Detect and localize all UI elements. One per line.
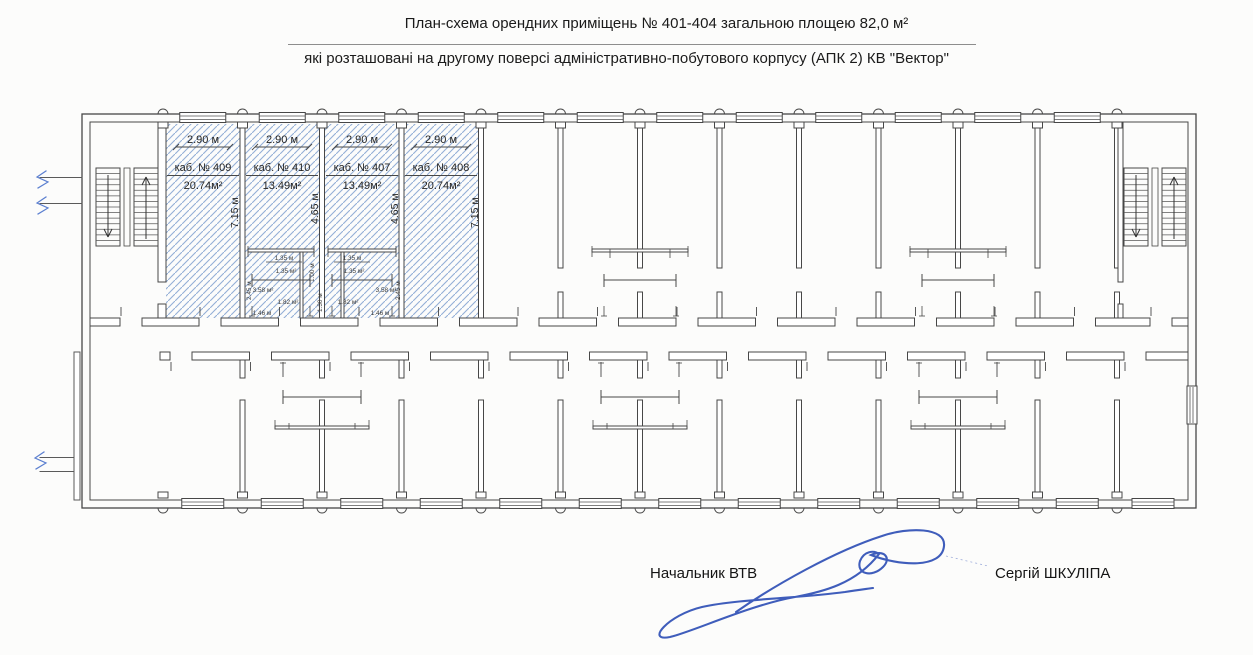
pier <box>556 122 566 128</box>
corridor-wall <box>669 352 727 360</box>
partition-pier <box>1035 292 1040 318</box>
inner-dim: 1.46 м <box>371 310 390 317</box>
pier <box>476 122 486 128</box>
room-407-depth-dim: 4.65 м <box>389 193 401 224</box>
stairs-rail <box>124 168 130 246</box>
partition-pier <box>638 292 643 318</box>
corridor-wall <box>749 352 807 360</box>
pier <box>874 122 884 128</box>
pier <box>953 122 963 128</box>
room-409-area: 20.74м² <box>184 180 223 192</box>
partition-pier <box>797 292 802 318</box>
stairwell-pier <box>158 304 166 318</box>
partition-wall <box>638 400 643 498</box>
pier <box>794 122 804 128</box>
partition-wall <box>956 122 961 268</box>
inner-dim: 2.45 м <box>246 281 253 300</box>
window <box>1132 499 1174 509</box>
column-bump <box>1112 508 1122 513</box>
partition-wall <box>876 122 881 268</box>
corridor-wall <box>1096 318 1151 326</box>
wall-opening <box>83 181 89 200</box>
stairwell-wall <box>1118 122 1123 282</box>
pier <box>556 492 566 498</box>
window <box>180 113 226 123</box>
partition-wall <box>558 122 563 268</box>
window <box>736 113 782 123</box>
window <box>1056 499 1098 509</box>
room-410-width-dim: 2.90 м <box>266 134 298 146</box>
inner-area: 3.58 м² <box>376 287 397 294</box>
column-bump <box>794 508 804 513</box>
cubicle-shelf <box>248 249 314 252</box>
column-bump <box>635 508 645 513</box>
corridor-wall <box>351 352 409 360</box>
inner-dim: 1.46 м <box>253 310 272 317</box>
inner-area: 1.82 м² <box>278 299 299 306</box>
corridor-wall <box>90 318 120 326</box>
floor-plan-drawing: 2.90 м 2.90 м 2.90 м 2.90 м каб. № 409 к… <box>0 0 1253 655</box>
inner-dim: 1.00 м <box>309 263 316 282</box>
partition-wall <box>479 400 484 498</box>
window <box>1187 386 1197 424</box>
corridor-wall <box>431 352 489 360</box>
stairwell-pier <box>1118 304 1123 318</box>
column-bump <box>1033 109 1043 114</box>
partition-wall <box>638 122 643 268</box>
pier <box>635 122 645 128</box>
pier <box>476 492 486 498</box>
stairs-up-arrow <box>142 177 146 185</box>
corridor-wall <box>380 318 438 326</box>
inner-dim: 2.45 м <box>395 281 402 300</box>
corridor-wall <box>221 318 279 326</box>
corridor-wall <box>778 318 836 326</box>
pier <box>1112 122 1122 128</box>
window <box>579 499 621 509</box>
pier <box>794 492 804 498</box>
column-bump <box>874 508 884 513</box>
stairs-down-arrow <box>108 229 112 237</box>
column-bump <box>238 508 248 513</box>
window <box>182 499 224 509</box>
corridor-wall <box>1067 352 1125 360</box>
column-bump <box>556 109 566 114</box>
window <box>895 113 941 123</box>
window <box>1054 113 1100 123</box>
column-bump <box>397 109 407 114</box>
pier <box>317 122 327 128</box>
break-mark-icon <box>35 452 46 469</box>
corridor-wall <box>908 352 966 360</box>
corridor-wall <box>698 318 756 326</box>
partition-pier <box>956 292 961 318</box>
column-bump <box>158 109 168 114</box>
column-bump <box>556 508 566 513</box>
window <box>816 113 862 123</box>
column-bump <box>635 109 645 114</box>
room-407-width-dim: 2.90 м <box>346 134 378 146</box>
corridor-wall <box>142 318 199 326</box>
partition-wall <box>1035 400 1040 498</box>
window <box>259 113 305 123</box>
pier <box>317 492 327 498</box>
room-410-depth-dim: 4.65 м <box>309 193 321 224</box>
column-bump <box>715 508 725 513</box>
partition-wall <box>320 400 325 498</box>
column-bump <box>1112 109 1122 114</box>
window <box>420 499 462 509</box>
column-bump <box>476 508 486 513</box>
stairs-down-arrow <box>1132 229 1136 237</box>
pier <box>874 492 884 498</box>
partition-wall <box>240 400 245 498</box>
room-409-width-dim: 2.90 м <box>187 134 219 146</box>
column-bump <box>953 508 963 513</box>
pier <box>1033 492 1043 498</box>
signature-tail <box>946 556 988 566</box>
window <box>738 499 780 509</box>
inner-dim: 1.35 м <box>275 255 294 262</box>
signer-role-label: Начальник ВТВ <box>650 565 757 582</box>
pier <box>715 122 725 128</box>
corridor-wall <box>539 318 597 326</box>
room-408-label: каб. № 408 <box>413 162 470 174</box>
partition-pier <box>558 292 563 318</box>
column-bump <box>874 109 884 114</box>
signature-stroke <box>659 530 944 637</box>
pier <box>635 492 645 498</box>
corridor-wall <box>619 318 677 326</box>
corridor-wall <box>272 352 330 360</box>
window <box>659 499 701 509</box>
partition-wall <box>797 400 802 498</box>
cubicle-shelf <box>592 249 688 252</box>
window <box>975 113 1021 123</box>
partition-wall <box>1035 122 1040 268</box>
pier <box>1033 122 1043 128</box>
pier <box>397 122 407 128</box>
room-408-depth-dim: 7.15 м <box>469 197 481 228</box>
partition-wall <box>956 400 961 498</box>
partition-wall <box>399 400 404 498</box>
stairs-up-arrow <box>1174 177 1178 185</box>
room-408-width-dim: 2.90 м <box>425 134 457 146</box>
window <box>500 499 542 509</box>
column-bump <box>1033 508 1043 513</box>
partition-wall <box>876 400 881 498</box>
column-bump <box>238 109 248 114</box>
partition-wall <box>717 400 722 498</box>
corridor-wall <box>590 352 648 360</box>
corridor-wall <box>510 352 568 360</box>
column-bump <box>715 109 725 114</box>
corridor-wall <box>1172 318 1188 326</box>
corridor-wall <box>987 352 1045 360</box>
cubicle-shelf <box>910 249 1006 252</box>
pier <box>397 492 407 498</box>
window <box>897 499 939 509</box>
room-410-area: 13.49м² <box>263 180 302 192</box>
room-407-area: 13.49м² <box>343 180 382 192</box>
window <box>418 113 464 123</box>
annex-wall <box>74 352 80 500</box>
corridor-wall <box>937 318 995 326</box>
window <box>339 113 385 123</box>
corridor-wall <box>192 352 250 360</box>
stairs-rail <box>1152 168 1158 246</box>
column-bump <box>397 508 407 513</box>
pier <box>238 122 248 128</box>
column-bump <box>317 508 327 513</box>
signer-name-label: Сергій ШКУЛІПА <box>995 565 1110 582</box>
corridor-wall <box>301 318 359 326</box>
column-bump <box>953 109 963 114</box>
window <box>261 499 303 509</box>
break-mark-icon <box>37 171 48 188</box>
column-bump <box>317 109 327 114</box>
stairwell-wall <box>158 122 166 282</box>
room-409-depth-dim: 7.15 м <box>229 197 241 228</box>
partition-pier <box>876 292 881 318</box>
partition-pier <box>717 292 722 318</box>
inner-area: 1.35 м² <box>276 268 297 275</box>
window <box>498 113 544 123</box>
corridor-wall <box>828 352 886 360</box>
pier <box>1112 492 1122 498</box>
partition-wall <box>797 122 802 268</box>
scanned-document-page: План-схема орендних приміщень № 401-404 … <box>0 0 1253 655</box>
inner-dim: 1.35 м <box>343 255 362 262</box>
partition-wall <box>1115 400 1120 498</box>
inner-area: 1.35 м² <box>344 268 365 275</box>
corridor-wall <box>160 352 170 360</box>
room-409-label: каб. № 409 <box>175 162 232 174</box>
partition-wall <box>558 400 563 498</box>
room-407-label: каб. № 407 <box>334 162 391 174</box>
inner-area: 3.58 м² <box>253 287 274 294</box>
corridor-wall <box>857 318 915 326</box>
corridor-wall <box>1016 318 1074 326</box>
window <box>657 113 703 123</box>
room-408-area: 20.74м² <box>422 180 461 192</box>
partition-wall <box>717 122 722 268</box>
window <box>341 499 383 509</box>
cubicle-shelf <box>328 249 396 252</box>
stairs-up-arrow <box>1170 177 1174 185</box>
stairs-up-arrow <box>146 177 150 185</box>
inner-dim: 1.30 м <box>317 293 324 312</box>
inner-area: 1.82 м² <box>338 299 359 306</box>
window <box>577 113 623 123</box>
column-bump <box>794 109 804 114</box>
pier <box>953 492 963 498</box>
break-mark-icon <box>37 197 48 214</box>
room-410-label: каб. № 410 <box>254 162 311 174</box>
window <box>977 499 1019 509</box>
pier <box>715 492 725 498</box>
signature <box>659 530 988 637</box>
pier <box>158 122 168 128</box>
column-bump <box>158 508 168 513</box>
stairs-down-arrow <box>104 229 108 237</box>
corridor-wall <box>1146 352 1188 360</box>
stairs-down-arrow <box>1136 229 1140 237</box>
pier <box>238 492 248 498</box>
corridor-wall <box>460 318 518 326</box>
pier <box>158 492 168 498</box>
window <box>818 499 860 509</box>
column-bump <box>476 109 486 114</box>
